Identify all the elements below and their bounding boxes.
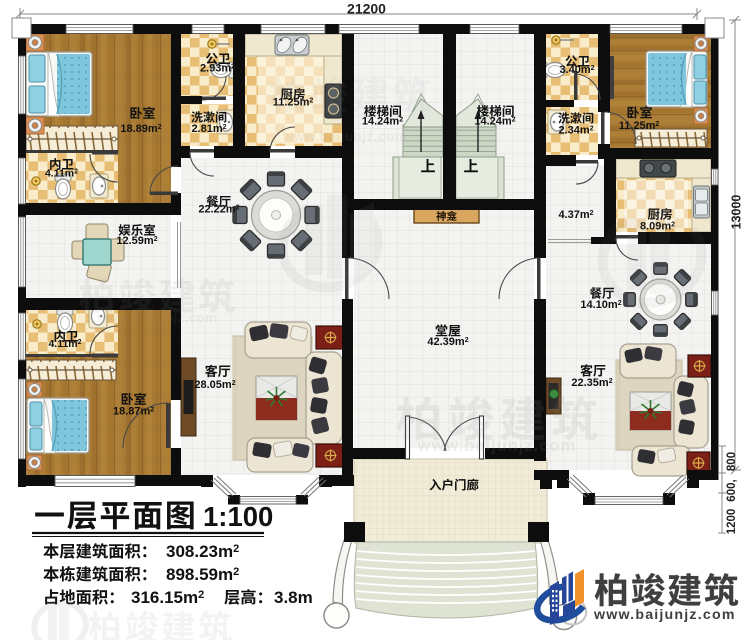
svg-text:3.40m2: 3.40m2 [559, 64, 594, 76]
svg-text:4.11m2: 4.11m2 [48, 338, 81, 350]
svg-text:2.34m2: 2.34m2 [558, 125, 593, 137]
svg-text:14.24m2: 14.24m2 [362, 116, 403, 128]
svg-text:14.24m2: 14.24m2 [474, 116, 515, 128]
svg-text:13000: 13000 [730, 195, 744, 230]
svg-text:316.15m2: 316.15m2 [131, 588, 204, 607]
svg-text:2.81m2: 2.81m2 [191, 123, 226, 135]
svg-text:www.baijunjz.com: www.baijunjz.com [417, 437, 576, 455]
svg-text:800: 800 [726, 452, 738, 471]
svg-text:308.23m2: 308.23m2 [166, 542, 239, 561]
svg-text:1:100: 1:100 [203, 501, 273, 532]
svg-text:www.baijunjz.com: www.baijunjz.com [282, 129, 408, 144]
svg-text:28.05m2: 28.05m2 [194, 379, 235, 391]
svg-text:22.22m2: 22.22m2 [198, 204, 239, 216]
svg-text:898.59m2: 898.59m2 [166, 565, 239, 584]
svg-text:12.59m2: 12.59m2 [116, 235, 157, 247]
svg-text:600,: 600, [726, 479, 738, 501]
svg-text:22.35m2: 22.35m2 [571, 377, 612, 389]
svg-text:1200: 1200 [726, 509, 738, 535]
svg-text:11.25m2: 11.25m2 [619, 120, 660, 132]
svg-text:18.89m2: 18.89m2 [120, 123, 161, 135]
svg-text:3.8m: 3.8m [274, 588, 313, 607]
svg-text:42.39m2: 42.39m2 [427, 336, 468, 348]
svg-text:14.10m2: 14.10m2 [580, 299, 621, 311]
svg-text:www.baijunjz.com: www.baijunjz.com [593, 607, 736, 623]
svg-text:4.11m2: 4.11m2 [45, 168, 78, 180]
svg-text:www.baijunjz.com: www.baijunjz.com [96, 310, 217, 325]
svg-text:2.93m2: 2.93m2 [200, 63, 235, 75]
svg-text:21200: 21200 [347, 1, 386, 17]
svg-text:18.87m2: 18.87m2 [113, 406, 154, 418]
svg-text:4.37m2: 4.37m2 [558, 209, 593, 221]
